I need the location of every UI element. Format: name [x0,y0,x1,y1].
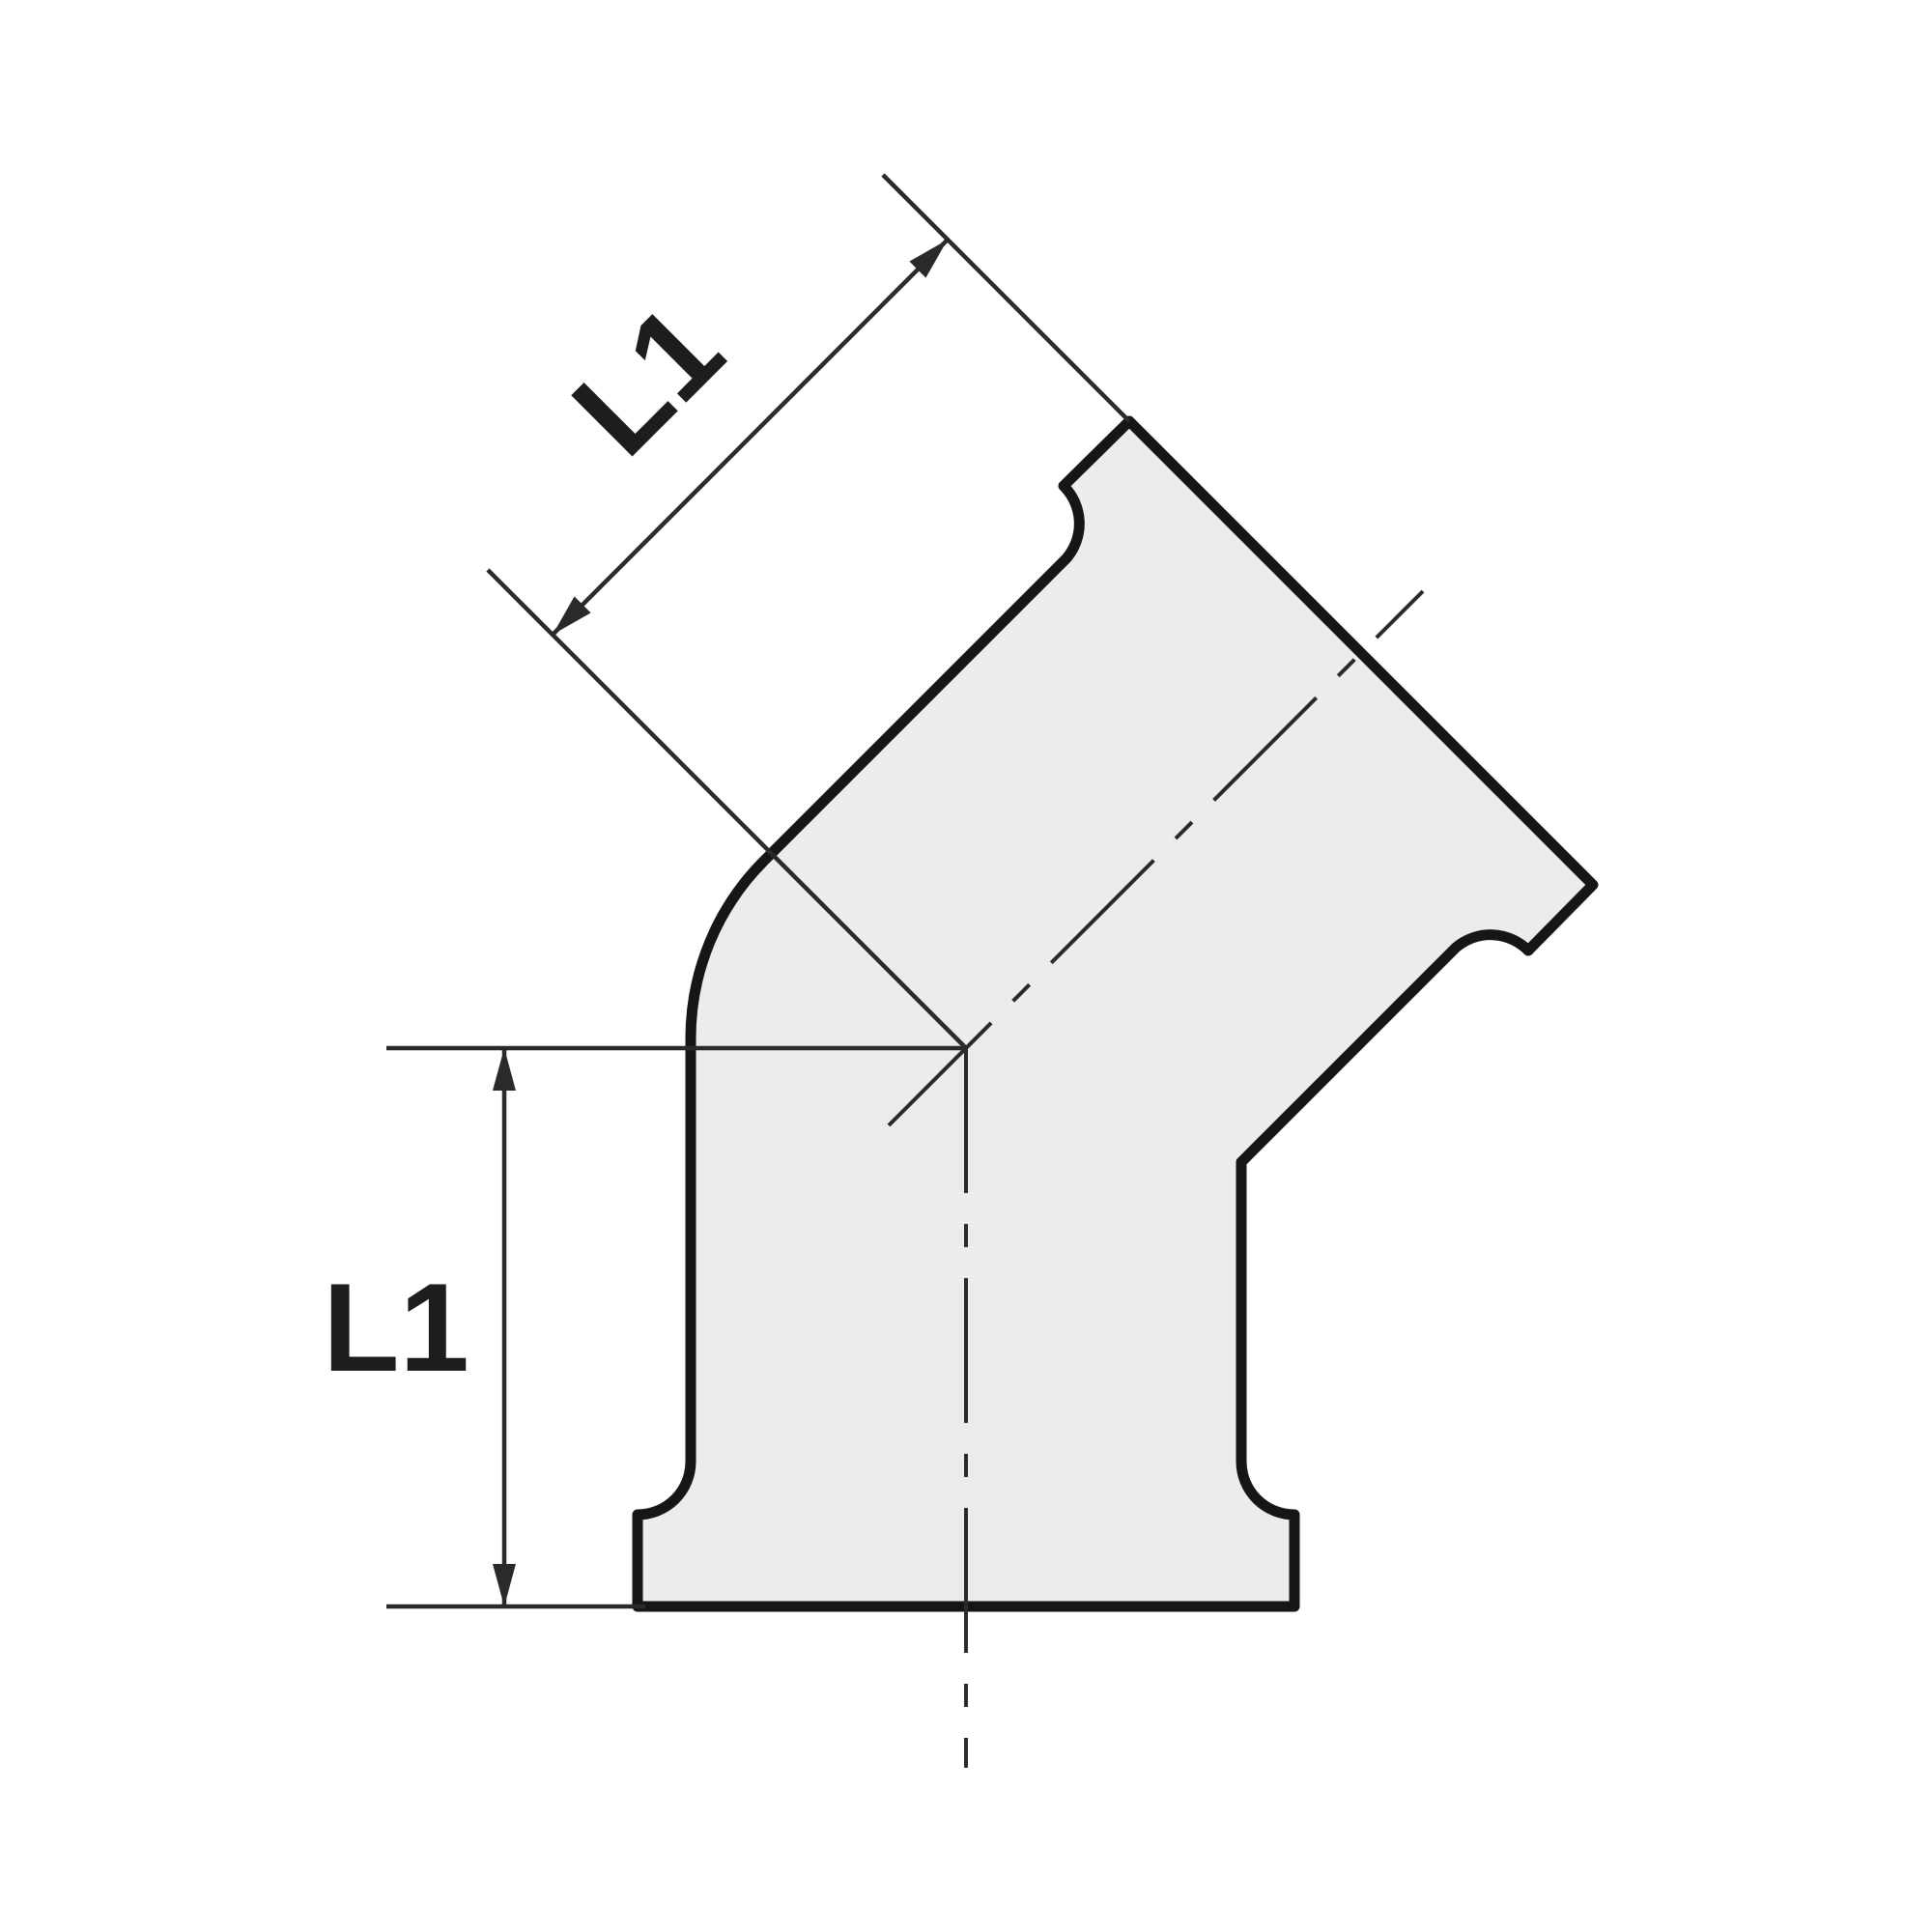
fitting-body-outline [638,421,1593,1606]
dimension-label-angled-arm: L1 [546,278,750,482]
elbow-fitting-drawing: L1 L1 [0,0,1932,1932]
drawing-canvas: L1 L1 [0,0,1932,1932]
dimension-label-vertical-arm: L1 [323,1257,469,1398]
extension-line-upper-face [883,175,1129,421]
